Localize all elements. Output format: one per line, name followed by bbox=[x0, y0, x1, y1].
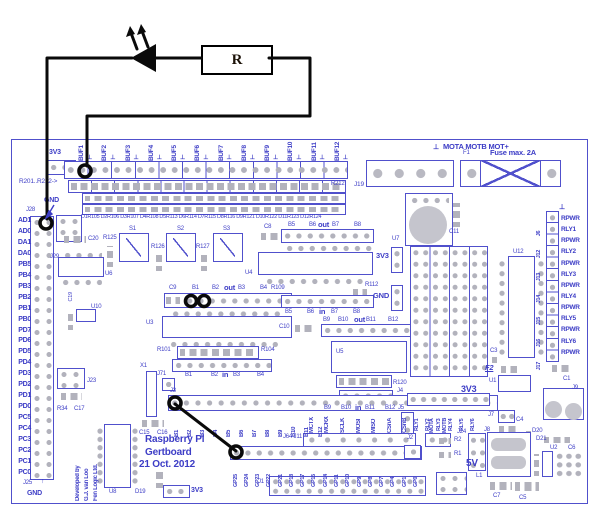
connection-rings bbox=[40, 165, 242, 458]
led-circuit-wires bbox=[47, 31, 310, 451]
ring-jumper-right bbox=[199, 296, 210, 307]
gertboard-led-diagram: 3V3 R201..R212-> D1R105 D2R106 D3R107 D4… bbox=[0, 0, 600, 525]
ring-jumper-left bbox=[186, 296, 197, 307]
ring-buf1-pad bbox=[79, 165, 91, 177]
led-light-arrow-2 bbox=[137, 24, 146, 35]
led-symbol bbox=[126, 24, 156, 72]
circuit-overlay bbox=[0, 0, 600, 525]
led-light-arrow-1 bbox=[126, 26, 135, 37]
